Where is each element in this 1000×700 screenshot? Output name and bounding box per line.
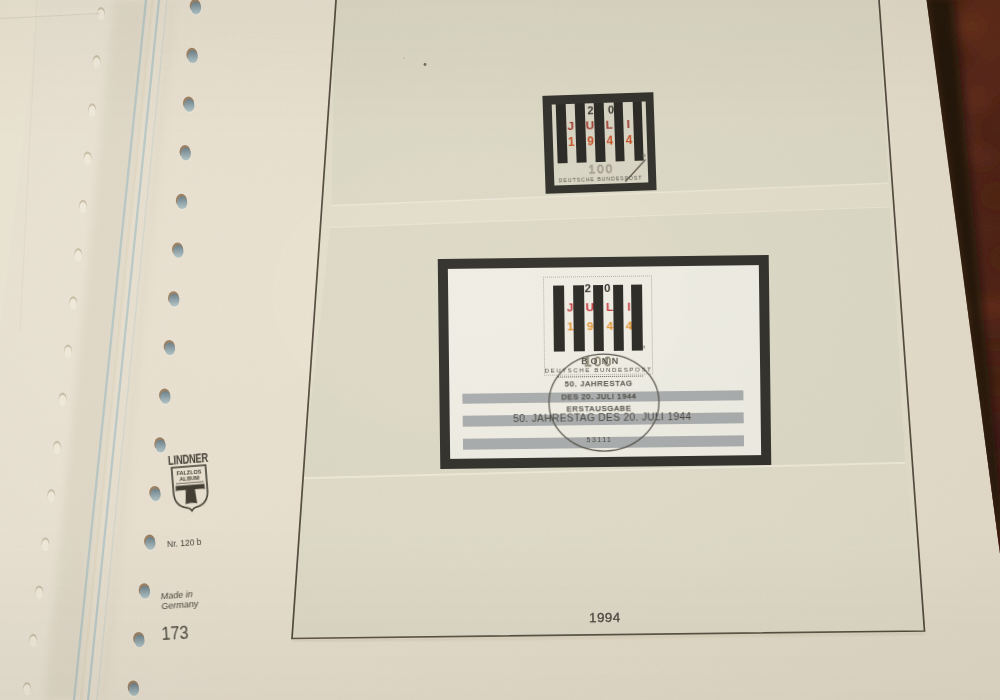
svg-text:ALBUM: ALBUM <box>179 475 200 483</box>
